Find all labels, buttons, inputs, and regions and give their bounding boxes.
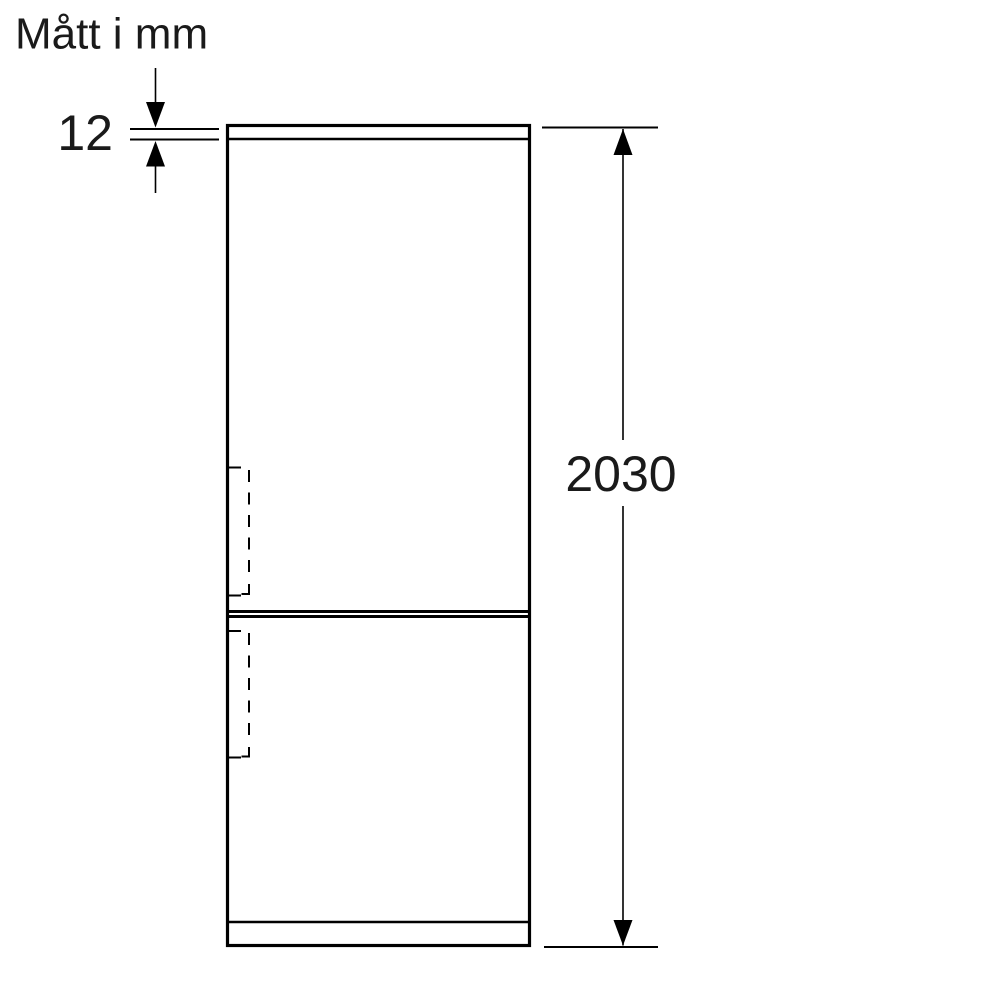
upper-door-dash-corner — [242, 584, 250, 594]
dimension-2030-label: 2030 — [565, 446, 676, 502]
dimension-height-2030: 2030 — [542, 128, 677, 948]
arrow-down-icon — [614, 920, 633, 946]
lower-door-dash-corner — [242, 747, 250, 757]
fridge-body — [228, 126, 530, 946]
arrow-up-icon — [614, 129, 633, 155]
lower-door-dashed-profile — [228, 631, 249, 758]
arrow-down-icon — [146, 102, 165, 128]
diagram-svg: Mått i mm — [0, 0, 1000, 1000]
dimension-12-label: 12 — [57, 105, 113, 161]
appliance-dimension-diagram: Mått i mm — [0, 0, 1000, 1000]
upper-door-dashed-profile — [228, 468, 249, 596]
arrow-up-icon — [146, 141, 165, 167]
dimension-top-panel-12: 12 — [57, 68, 219, 193]
fridge-outline — [228, 126, 530, 946]
diagram-title: Mått i mm — [15, 10, 208, 59]
